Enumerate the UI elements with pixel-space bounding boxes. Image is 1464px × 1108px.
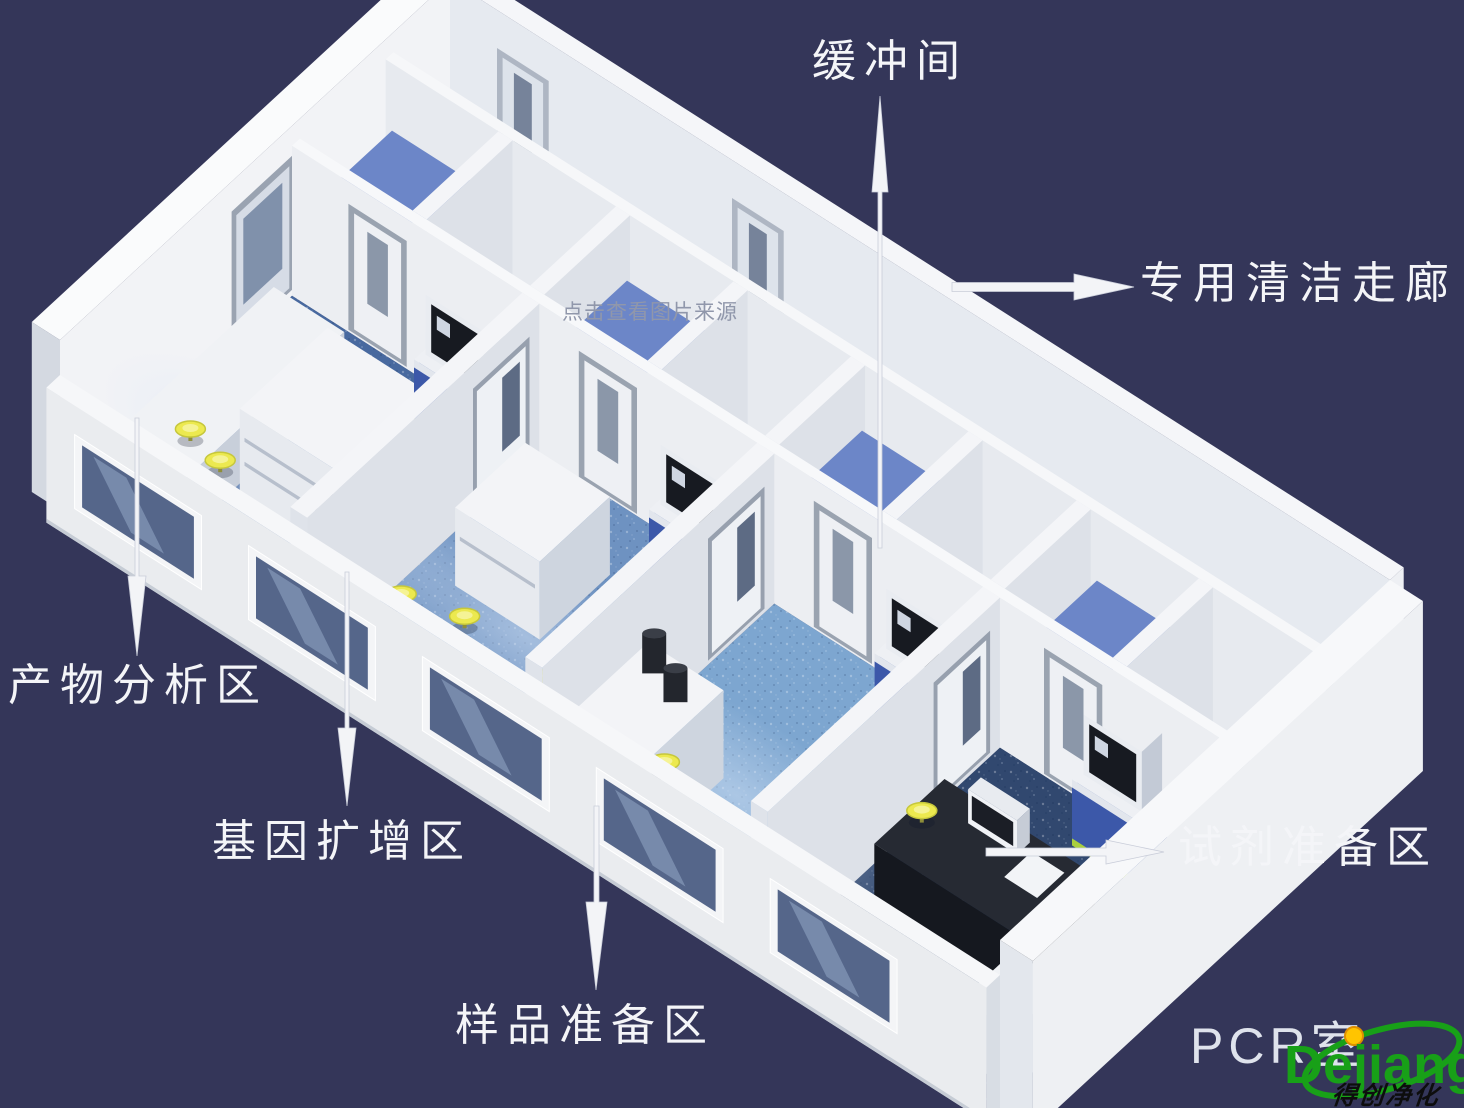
label-clean-corridor: 专用清洁走廊 — [1140, 260, 1458, 308]
label-product-analysis-area: 产物分析区 — [8, 662, 268, 710]
logo-tagline: 得创净化 — [1330, 1076, 1442, 1108]
label-sample-preparation-area: 样品准备区 — [455, 1002, 715, 1050]
label-reagent-preparation-area: 试剂准备区 — [1178, 824, 1438, 872]
se-outer-wall — [1000, 940, 1033, 1108]
pcr-lab-diagram: 缓冲间 专用清洁走廊 产物分析区 基因扩增区 样品准备区 试剂准备区 点击查看图… — [0, 0, 1464, 1108]
image-source-watermark-link[interactable]: 点击查看图片来源 — [562, 296, 738, 326]
sw-outer-wall — [986, 975, 1000, 1108]
clean-corridor-arrow — [952, 274, 1134, 300]
pcr-lab-3d-illustration — [0, 0, 1464, 1108]
dejiang-logo: Dejiang 得创净化 — [1270, 1010, 1464, 1108]
label-buffer-room: 缓冲间 — [812, 38, 968, 86]
label-gene-amplification-area: 基因扩增区 — [212, 818, 472, 866]
